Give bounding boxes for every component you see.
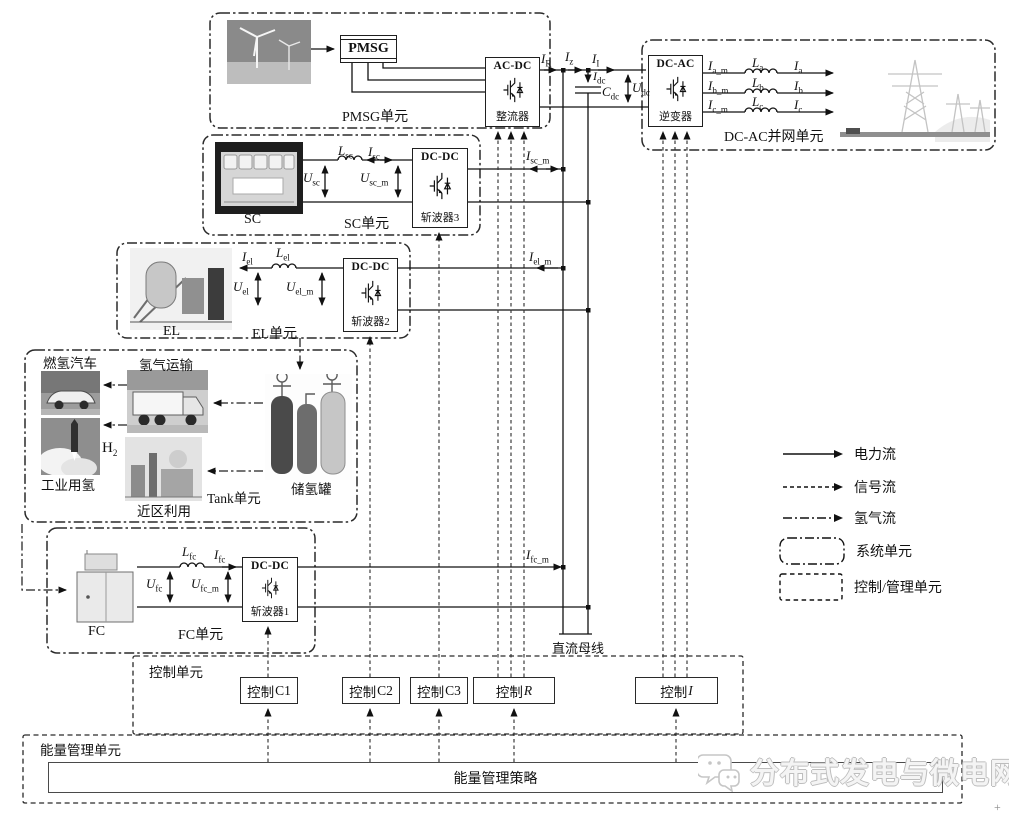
watermark-text: 分布式发电与微电网 <box>750 750 1009 792</box>
ems-strategy-label: 能量管理策略 <box>454 768 538 788</box>
pmsg-generator-label: PMSG <box>348 41 388 57</box>
legend-system-unit: 系统单元 <box>778 536 912 566</box>
dashdot-arrow-icon <box>782 512 844 524</box>
dc-bus-label: 直流母线 <box>552 638 604 657</box>
c-dc-label: Cdc <box>602 84 619 102</box>
igbt-symbol <box>259 577 281 599</box>
tank-industry-label: 工业用氢 <box>41 474 95 494</box>
i-el-m-label: Iel_m <box>529 249 551 267</box>
inverter-box: DC-AC 逆变器 <box>648 55 703 127</box>
chopper1-box: DC-DC 斩波器1 <box>242 557 298 622</box>
i-fc-m-label: Ifc_m <box>526 547 549 565</box>
inverter-type-label: DC-AC <box>656 58 694 70</box>
chopper3-name-label: 斩波器3 <box>421 209 460 225</box>
l-el-label: Lel <box>276 245 290 263</box>
i-sc-m-label: Isc_m <box>526 148 549 166</box>
dashed-box-icon <box>778 572 844 602</box>
chopper1-name-label: 斩波器1 <box>251 603 290 619</box>
dashdot-box-icon <box>778 536 846 566</box>
igbt-symbol <box>501 77 525 103</box>
corner-mark: + <box>994 800 1001 815</box>
el-source-label: EL <box>163 324 180 340</box>
i-r-label: IR <box>541 51 551 69</box>
control-box-i: 控制I <box>635 677 718 704</box>
i-z-label: Iz <box>565 49 573 67</box>
control-c3-var: C3 <box>445 683 461 699</box>
control-unit-label: 控制单元 <box>149 661 203 681</box>
legend-system-unit-label: 系统单元 <box>856 541 912 561</box>
i-c-label: Ic <box>794 97 802 115</box>
l-c-label: Lc <box>752 94 763 112</box>
rectifier-type-label: AC-DC <box>493 60 531 72</box>
supercapacitor-photo <box>215 142 303 214</box>
i-sc-label: Isc <box>368 144 380 162</box>
l-b-label: Lb <box>752 75 764 93</box>
dashed-arrow-icon <box>782 481 844 493</box>
chopper2-name-label: 斩波器2 <box>351 313 390 329</box>
transmission-tower-photo <box>840 52 990 142</box>
el-unit-label: EL单元 <box>252 323 297 343</box>
hydrogen-truck-photo <box>127 370 208 433</box>
tank-unit-label: Tank单元 <box>207 487 261 507</box>
grid-unit-label: DC-AC并网单元 <box>724 126 824 146</box>
control-c1-prefix: 控制 <box>247 681 274 701</box>
tank-car-label: 燃氢汽车 <box>43 352 97 372</box>
sc-source-label: SC <box>244 212 261 228</box>
tank-transport-label: 氢气运输 <box>139 354 193 374</box>
control-r-var: R <box>524 683 532 699</box>
u-fc-label: Ufc <box>146 576 162 594</box>
junction-dots <box>561 68 591 610</box>
control-i-prefix: 控制 <box>660 681 687 701</box>
fuel-cell-photo <box>73 550 137 625</box>
chopper3-box: DC-DC 斩波器3 <box>412 148 468 228</box>
legend-hydrogen-label: 氢气流 <box>854 508 896 528</box>
i-fc-label: Ifc <box>214 547 225 565</box>
ems-unit-label: 能量管理单元 <box>40 739 121 759</box>
legend-control-unit-label: 控制/管理单元 <box>854 577 942 597</box>
chopper1-type-label: DC-DC <box>251 560 289 572</box>
igbt-symbol <box>428 172 452 200</box>
hydrogen-car-photo <box>41 371 100 415</box>
legend-power-flow: 电力流 <box>782 444 896 464</box>
l-fc-label: Lfc <box>182 544 196 562</box>
inverter-name-label: 逆变器 <box>659 108 692 124</box>
control-c2-var: C2 <box>377 683 393 699</box>
control-r-prefix: 控制 <box>496 681 523 701</box>
tank-name-label: 储氢罐 <box>291 478 332 498</box>
u-el-m-label: Uel_m <box>286 279 313 297</box>
u-el-label: Uel <box>233 279 249 297</box>
u-fc-m-label: Ufc_m <box>191 576 219 594</box>
industrial-rocket-photo <box>41 418 100 475</box>
legend-signal-label: 信号流 <box>854 477 896 497</box>
control-box-c2: 控制C2 <box>342 677 400 704</box>
igbt-symbol <box>359 280 383 306</box>
i-inv-label: II <box>592 51 599 69</box>
control-box-c1: 控制C1 <box>240 677 298 704</box>
control-box-r: 控制R <box>473 677 555 704</box>
chopper2-box: DC-DC 斩波器2 <box>343 258 398 332</box>
i-a-m-label: Ia_m <box>708 58 728 76</box>
legend-hydrogen-flow: 氢气流 <box>782 508 896 528</box>
solid-arrow-icon <box>782 448 844 460</box>
control-box-c3: 控制C3 <box>410 677 468 704</box>
u-sc-label: Usc <box>303 170 320 188</box>
electrolyzer-photo <box>130 248 232 330</box>
wechat-icon <box>698 750 744 792</box>
rectifier-name-label: 整流器 <box>496 108 529 124</box>
fc-source-label: FC <box>88 624 105 640</box>
l-sc-label: Lsc <box>338 143 353 161</box>
i-b-label: Ib <box>794 78 803 96</box>
system-diagram: PMSG AC-DC 整流器 DC-AC 逆变器 DC-DC 斩波器3 DC-D… <box>0 0 1009 816</box>
control-c1-var: C1 <box>275 683 291 699</box>
legend-signal-flow: 信号流 <box>782 477 896 497</box>
chopper3-type-label: DC-DC <box>421 151 459 163</box>
i-b-m-label: Ib_m <box>708 78 728 96</box>
tank-local-label: 近区利用 <box>137 500 191 520</box>
u-dc-label: Udc <box>632 80 650 98</box>
control-i-var: I <box>688 683 693 699</box>
rectifier-box: AC-DC 整流器 <box>485 57 540 127</box>
l-a-label: La <box>752 55 763 73</box>
fc-unit-label: FC单元 <box>178 624 223 644</box>
local-plant-photo <box>125 437 202 501</box>
watermark: 分布式发电与微电网 <box>698 750 1009 792</box>
wind-turbine-photo <box>227 20 311 84</box>
control-c2-prefix: 控制 <box>349 681 376 701</box>
chopper2-type-label: DC-DC <box>351 261 389 273</box>
control-c3-prefix: 控制 <box>417 681 444 701</box>
pmsg-generator-box: PMSG <box>340 35 397 63</box>
legend-power-label: 电力流 <box>854 444 896 464</box>
i-a-label: Ia <box>794 58 802 76</box>
igbt-symbol <box>664 76 688 102</box>
sc-unit-label: SC单元 <box>344 213 389 233</box>
i-c-m-label: Ic_m <box>708 97 728 115</box>
h2-label: H2 <box>102 440 117 458</box>
i-dc-label: Idc <box>593 69 606 85</box>
pmsg-unit-label: PMSG单元 <box>342 106 408 126</box>
legend-control-unit: 控制/管理单元 <box>778 572 942 602</box>
i-el-label: Iel <box>242 249 253 267</box>
u-sc-m-label: Usc_m <box>360 170 388 188</box>
hydrogen-cylinders-photo <box>265 374 352 480</box>
